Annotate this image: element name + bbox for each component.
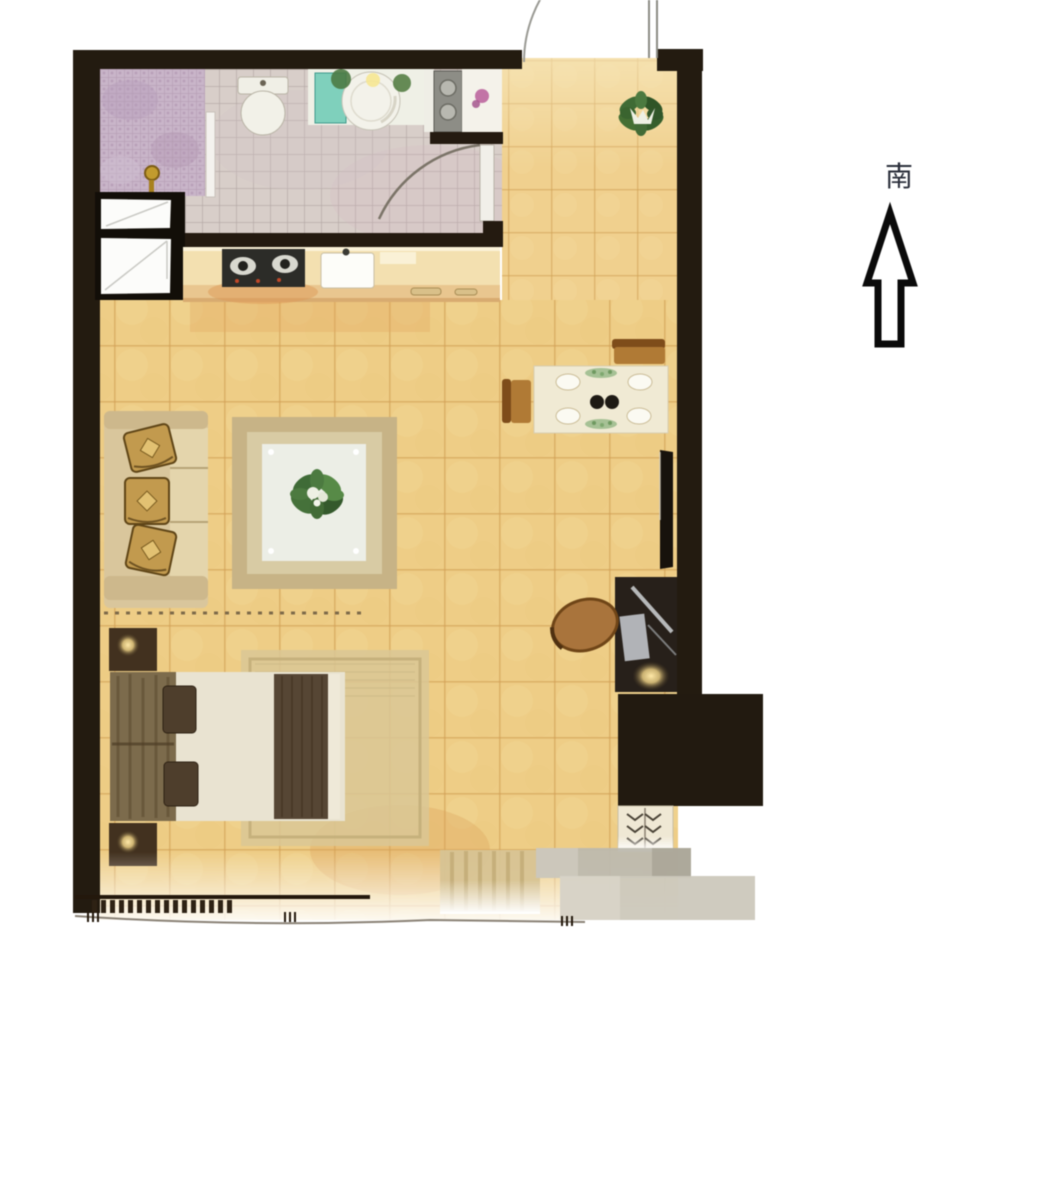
svg-text:南: 南	[885, 161, 913, 192]
